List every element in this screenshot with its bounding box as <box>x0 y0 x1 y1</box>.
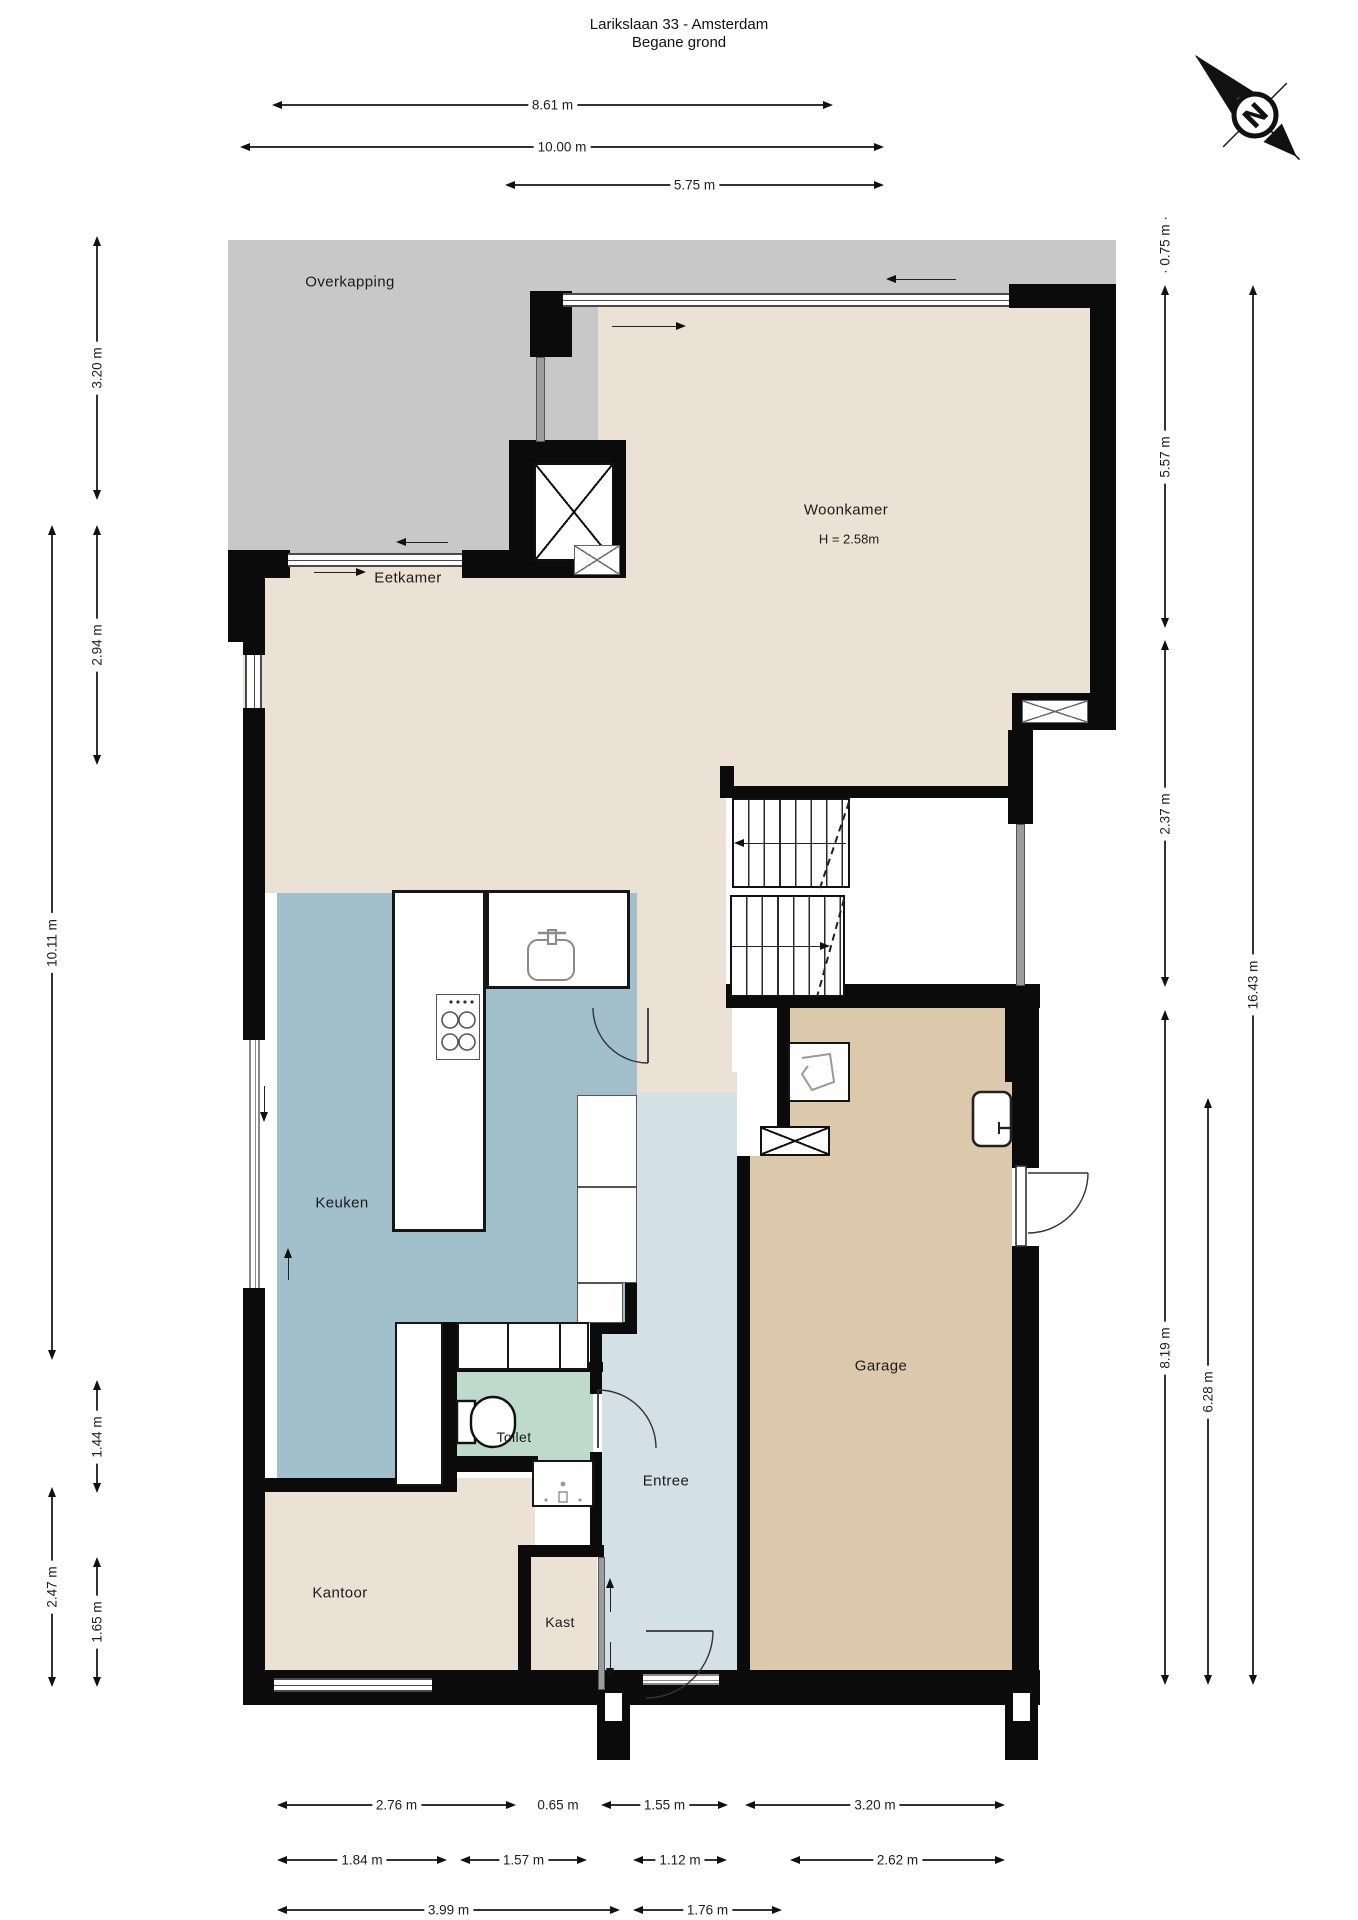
dimension-label: 1.12 m <box>655 1853 704 1868</box>
dimension-label: 2.37 m <box>1158 787 1173 840</box>
sink-icon <box>524 928 580 984</box>
slide-arrow-right-icon <box>356 568 366 576</box>
dimension-label: 0.65 m <box>533 1798 582 1813</box>
plan-title: Larikslaan 33 - Amsterdam <box>0 16 1358 33</box>
dimension-arrow-up-icon <box>93 236 101 246</box>
room-label-overkapping: Overkapping <box>305 274 394 291</box>
dimension-vertical: 10.11 m <box>43 525 61 1360</box>
dimension-arrow-right-icon <box>577 1856 587 1864</box>
dimension-label: 2.47 m <box>45 1560 60 1613</box>
dimension-label: 10.11 m <box>45 913 60 973</box>
floor-garage <box>750 1156 1012 1685</box>
room-label-woonkamer: Woonkamer <box>804 502 888 519</box>
slide-arrow-line <box>894 279 956 280</box>
dimension-horizontal: 8.61 m <box>272 96 833 114</box>
floor-kantoor <box>255 1478 535 1693</box>
boiler-icon <box>788 1042 850 1102</box>
slide-arrow-up-icon <box>606 1578 614 1588</box>
window-woonkamer-top <box>563 293 1009 307</box>
stair-direction-line <box>742 843 846 844</box>
dimension-label: 1.84 m <box>337 1853 386 1868</box>
cabinet <box>559 1322 589 1370</box>
dimension-arrow-left-icon <box>505 181 515 189</box>
slide-arrow-line <box>610 1642 611 1670</box>
cabinet <box>457 1322 509 1370</box>
dimension-arrow-right-icon <box>874 143 884 151</box>
wall <box>462 550 509 578</box>
dimension-label: 2.62 m <box>873 1853 922 1868</box>
slide-arrow-line <box>264 1086 265 1114</box>
wall-left <box>243 1288 265 1705</box>
dimension-arrow-up-icon <box>48 525 56 535</box>
dimension-vertical: 2.37 m <box>1156 640 1174 987</box>
cabinet <box>507 1322 561 1370</box>
floor-woonkamer-lower <box>555 700 1012 788</box>
room-label-kantoor: Kantoor <box>312 1585 367 1602</box>
dimension-label: 2.94 m <box>90 618 105 671</box>
slide-arrow-left-icon <box>886 275 896 283</box>
plan-subtitle: Begane grond <box>0 34 1358 51</box>
dimension-arrow-left-icon <box>277 1906 287 1914</box>
dimension-arrow-left-icon <box>272 101 282 109</box>
wall <box>720 766 734 798</box>
dimension-arrow-down-icon <box>93 1483 101 1493</box>
dimension-arrow-down-icon <box>48 1350 56 1360</box>
room-label-entree: Entree <box>643 1473 690 1490</box>
dimension-label: 16.43 m <box>1246 955 1261 1016</box>
slide-arrow-line <box>612 326 678 327</box>
wall <box>1008 730 1033 824</box>
wall <box>1090 284 1116 714</box>
dimension-vertical: 16.43 m <box>1244 285 1262 1685</box>
dimension-vertical: 1.65 m <box>88 1557 106 1687</box>
cooktop-icon <box>436 994 480 1060</box>
room-label-eetkamer: Eetkamer <box>374 570 441 587</box>
dimension-arrow-right-icon <box>772 1906 782 1914</box>
dimension-horizontal: 3.99 m <box>277 1901 620 1919</box>
dimension-vertical: 2.94 m <box>88 525 106 765</box>
room-label-garage: Garage <box>855 1358 907 1375</box>
wall-garage-left <box>737 1156 750 1670</box>
wall-garage-right <box>1012 995 1039 1168</box>
stair-direction-line <box>732 946 824 947</box>
dimension-horizontal: 2.62 m <box>790 1851 1005 1869</box>
dimension-arrow-down-icon <box>1161 618 1169 628</box>
slide-arrow-down-icon <box>260 1112 268 1122</box>
dimension-arrow-down-icon <box>1161 1675 1169 1685</box>
slide-arrow-up-icon <box>284 1248 292 1258</box>
dimension-label: 1.44 m <box>90 1410 105 1463</box>
slide-arrow-left-icon <box>396 538 406 546</box>
dimension-arrow-right-icon <box>610 1906 620 1914</box>
vent-x-box-woonkamer <box>1022 700 1088 723</box>
dimension-vertical: 6.28 m <box>1199 1098 1217 1685</box>
garage-sink-icon <box>971 1090 1015 1148</box>
cabinet <box>577 1187 637 1283</box>
dimension-vertical: 2.47 m <box>43 1487 61 1687</box>
dimension-arrow-up-icon <box>48 1487 56 1497</box>
dimension-arrow-up-icon <box>1161 640 1169 650</box>
window-kantoor-bottom <box>274 1678 432 1692</box>
dimension-arrow-left-icon <box>633 1856 643 1864</box>
dimension-label: · 0.75 m · <box>1158 210 1173 280</box>
front-door[interactable] <box>640 1625 724 1705</box>
dimension-label: 1.65 m <box>90 1595 105 1648</box>
dimension-label: 6.28 m <box>1201 1365 1216 1418</box>
room-height-note: H = 2.58m <box>819 532 879 547</box>
floor-entree-upper <box>637 1093 737 1332</box>
dimension-label: 8.61 m <box>528 98 577 113</box>
dimension-horizontal: 1.55 m <box>601 1796 728 1814</box>
garage-side-door[interactable] <box>1012 1164 1096 1250</box>
glass-partition-top <box>536 357 545 442</box>
room-label-toilet: Toilet <box>496 1429 531 1445</box>
glass-partition-stairs <box>1016 824 1025 986</box>
slide-arrow-line <box>610 1584 611 1612</box>
dimension-arrow-up-icon <box>1204 1098 1212 1108</box>
dimension-horizontal: 5.75 m <box>505 176 884 194</box>
dimension-vertical: 5.57 m <box>1156 285 1174 628</box>
window-x-box-garage <box>760 1126 830 1156</box>
cabinet <box>577 1095 637 1187</box>
stairwell-door[interactable] <box>592 1004 656 1074</box>
slide-arrow-right-icon <box>676 322 686 330</box>
dimension-arrow-right-icon <box>823 101 833 109</box>
dimension-arrow-down-icon <box>93 1677 101 1687</box>
dimension-vertical: 3.20 m <box>88 236 106 500</box>
dimension-horizontal: 2.76 m <box>277 1796 516 1814</box>
dimension-vertical: 8.19 m <box>1156 1010 1174 1685</box>
dimension-arrow-right-icon <box>995 1801 1005 1809</box>
sliding-door-keuken-left[interactable] <box>249 1040 260 1288</box>
dimension-arrow-right-icon <box>718 1801 728 1809</box>
wall-garage-right <box>1012 1246 1039 1670</box>
dimension-label: 5.57 m <box>1158 430 1173 483</box>
dimension-arrow-up-icon <box>1161 1010 1169 1020</box>
wall <box>443 1456 538 1472</box>
understairs-closet <box>732 1008 777 1072</box>
floorplan-canvas: Larikslaan 33 - Amsterdam Begane grond <box>0 0 1358 1920</box>
dimension-arrow-left-icon <box>745 1801 755 1809</box>
room-label-kast: Kast <box>545 1614 575 1630</box>
dimension-arrow-left-icon <box>277 1801 287 1809</box>
dimension-horizontal: 1.84 m <box>277 1851 447 1869</box>
slide-arrow-down-icon <box>606 1668 614 1678</box>
dimension-arrow-left-icon <box>460 1856 470 1864</box>
dimension-arrow-down-icon <box>1249 1675 1257 1685</box>
chimney-x-box-small <box>574 545 620 575</box>
dimension-arrow-right-icon <box>717 1856 727 1864</box>
stair-direction-arrow <box>820 942 830 950</box>
window-eetkamer-left <box>245 655 262 708</box>
dimension-label: 3.20 m <box>90 341 105 394</box>
stair-direction-arrow <box>734 839 744 847</box>
dimension-label: 1.57 m <box>499 1853 548 1868</box>
dimension-label: 3.99 m <box>424 1903 473 1918</box>
dimension-horizontal: 1.12 m <box>633 1851 727 1869</box>
dimension-vertical: 1.44 m <box>88 1380 106 1493</box>
dimension-arrow-down-icon <box>93 755 101 765</box>
dimension-arrow-up-icon <box>93 525 101 535</box>
tall-cabinet <box>395 1322 443 1486</box>
dimension-arrow-up-icon <box>93 1557 101 1567</box>
dimension-arrow-up-icon <box>93 1380 101 1390</box>
wall-stairs-top <box>720 786 1012 798</box>
wall-stub-notch <box>1013 1693 1030 1721</box>
wall <box>590 1334 602 1394</box>
dimension-arrow-left-icon <box>633 1906 643 1914</box>
dimension-arrow-down-icon <box>48 1677 56 1687</box>
slide-arrow-line <box>404 542 448 543</box>
wall-left <box>243 708 265 1040</box>
dimension-label: 10.00 m <box>534 140 591 155</box>
dimension-arrow-left-icon <box>240 143 250 151</box>
dimension-label: 3.20 m <box>850 1798 899 1813</box>
sliding-door-kast[interactable] <box>598 1557 605 1690</box>
dimension-label: 1.55 m <box>640 1798 689 1813</box>
dimension-arrow-left-icon <box>601 1801 611 1809</box>
dimension-arrow-right-icon <box>874 181 884 189</box>
dimension-arrow-right-icon <box>437 1856 447 1864</box>
dimension-label: 1.76 m <box>683 1903 732 1918</box>
kitchen-island <box>392 890 486 1232</box>
dimension-horizontal: 1.57 m <box>460 1851 587 1869</box>
dimension-horizontal: 10.00 m <box>240 138 884 156</box>
window-overkapping <box>288 553 462 567</box>
slide-arrow-line <box>314 572 358 573</box>
dimension-arrow-left-icon <box>277 1856 287 1864</box>
toilet-door[interactable] <box>592 1386 664 1460</box>
dimension-arrow-up-icon <box>1249 285 1257 295</box>
wall-left <box>243 555 265 655</box>
dimension-horizontal: 1.76 m <box>633 1901 782 1919</box>
washbasin-icon <box>532 1460 594 1507</box>
dimension-arrow-left-icon <box>790 1856 800 1864</box>
dimension-label: 8.19 m <box>1158 1321 1173 1374</box>
dimension-arrow-down-icon <box>1161 977 1169 987</box>
wall-stub-notch <box>605 1693 622 1721</box>
dimension-label: 2.76 m <box>372 1798 421 1813</box>
room-label-keuken: Keuken <box>315 1195 368 1212</box>
dimension-horizontal: 3.20 m <box>745 1796 1005 1814</box>
dimension-arrow-right-icon <box>506 1801 516 1809</box>
dimension-label: 5.75 m <box>670 178 719 193</box>
dimension-arrow-down-icon <box>93 490 101 500</box>
dimension-arrow-up-icon <box>1161 285 1169 295</box>
compass-icon: N <box>1180 30 1330 180</box>
dimension-arrow-down-icon <box>1204 1675 1212 1685</box>
dimension-arrow-right-icon <box>995 1856 1005 1864</box>
cabinet <box>577 1283 623 1323</box>
